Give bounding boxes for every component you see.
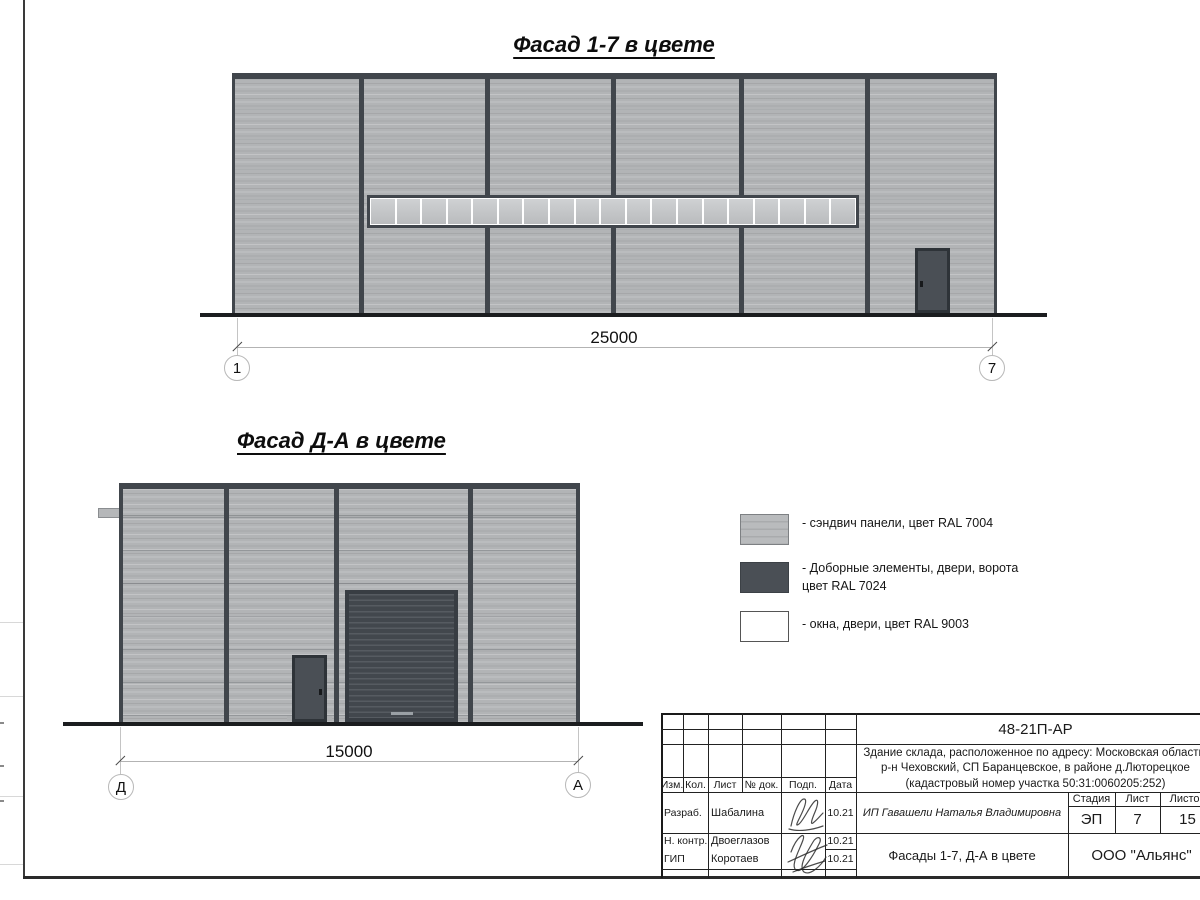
stage-value: ЭП <box>1068 806 1115 833</box>
signature-nkontr-gip <box>783 828 829 876</box>
window-pane <box>704 199 728 224</box>
document-code: 48-21П-АР <box>856 714 1200 744</box>
ground-line-facade-d-a <box>63 722 643 726</box>
dimension-value: 25000 <box>514 328 714 348</box>
roller-gate <box>345 590 458 722</box>
window-pane <box>729 199 753 224</box>
gate-handle <box>391 712 413 716</box>
margin-divider <box>0 622 23 623</box>
drawing-title: Фасады 1-7, Д-А в цвете <box>856 833 1068 878</box>
legend-swatch-ral7004 <box>740 514 789 545</box>
name-nkontr: Двоеглазов <box>708 833 781 849</box>
window-pane <box>422 199 446 224</box>
facade-column <box>865 79 870 313</box>
window-pane <box>371 199 395 224</box>
window-pane <box>397 199 421 224</box>
legend-label-ral9003: - окна, двери, цвет RAL 9003 <box>802 617 969 631</box>
door-handle <box>319 689 322 695</box>
facade-column <box>334 489 339 722</box>
window-pane <box>601 199 625 224</box>
extension-line <box>120 727 121 774</box>
window-pane <box>678 199 702 224</box>
margin-mark <box>0 765 4 767</box>
role-nkontr: Н. контр. <box>661 833 708 849</box>
window-pane <box>806 199 830 224</box>
window-pane <box>780 199 804 224</box>
name-gip: Коротаев <box>708 849 781 869</box>
legend-label-ral7024-line2: цвет RAL 7024 <box>802 579 887 593</box>
role-razrab: Разраб. <box>661 792 708 833</box>
entrance-door-facade-1-7 <box>915 248 950 313</box>
grid-axis-bubble-1: 1 <box>224 355 250 381</box>
margin-mark <box>0 800 4 802</box>
facade-column <box>224 489 229 722</box>
window-pane <box>627 199 651 224</box>
margin-mark <box>0 722 4 724</box>
dimension-value: 15000 <box>249 742 449 762</box>
drawing-sheet: { "colors":{ "panel":"#b2b4b6", "panel_j… <box>0 0 1200 900</box>
client-name: ИП Гавашели Наталья Владимировна <box>856 792 1068 833</box>
margin-divider <box>0 864 23 865</box>
legend-label-ral7024: - Доборные элементы, двери, ворота <box>802 561 1018 575</box>
facade-d-a-title: Фасад Д-А в цвете <box>237 428 446 454</box>
door-handle <box>920 281 923 287</box>
sheet-label: Лист <box>1115 792 1160 806</box>
address-line2: р-н Чеховский, СП Баранцевское, в районе… <box>856 761 1200 776</box>
window-pane <box>473 199 497 224</box>
sheets-total: 15 <box>1160 806 1200 833</box>
stage-label: Стадия <box>1068 792 1115 806</box>
name-razrab: Шабалина <box>708 792 781 833</box>
tb-line <box>781 713 782 878</box>
legend-swatch-ral9003 <box>740 611 789 642</box>
extension-line <box>992 318 993 357</box>
sheet-number: 7 <box>1115 806 1160 833</box>
col-header-podp: Подп. <box>781 777 825 792</box>
project-address: Здание склада, расположенное по адресу: … <box>856 746 1200 791</box>
entrance-door-facade-d-a <box>292 655 327 722</box>
address-line1: Здание склада, расположенное по адресу: … <box>856 746 1200 761</box>
extension-line <box>578 727 579 773</box>
window-pane <box>524 199 548 224</box>
facade-column <box>468 489 473 722</box>
margin-divider <box>0 796 23 797</box>
window-pane <box>448 199 472 224</box>
facade-column <box>359 79 364 313</box>
legend-swatch-ral7024 <box>740 562 789 593</box>
window-pane <box>831 199 855 224</box>
grid-axis-bubble-d: Д <box>108 774 134 800</box>
sheet-left-border <box>23 0 25 878</box>
window-pane <box>652 199 676 224</box>
col-header-izm: Изм. <box>661 777 683 792</box>
ground-line-facade-1-7 <box>200 313 1047 317</box>
address-line3: (кадастровый номер участка 50:31:0060205… <box>856 777 1200 792</box>
col-header-doc: № док. <box>742 777 781 792</box>
window-pane <box>755 199 779 224</box>
window-pane <box>499 199 523 224</box>
margin-divider <box>0 696 23 697</box>
window-pane <box>576 199 600 224</box>
tb-line <box>661 729 856 730</box>
col-header-data: Дата <box>825 777 856 792</box>
date-razrab: 10.21 <box>825 792 856 833</box>
grid-axis-bubble-a: А <box>565 772 591 798</box>
signature-razrab <box>785 794 825 832</box>
date-gip: 10.21 <box>825 849 856 869</box>
role-gip: ГИП <box>661 849 708 869</box>
legend-label-ral7004: - сэндвич панели, цвет RAL 7004 <box>802 516 993 530</box>
window-pane <box>550 199 574 224</box>
facade-d-a-elevation <box>119 483 580 722</box>
facade-1-7-title: Фасад 1-7 в цвете <box>413 32 815 58</box>
facade-1-7-elevation <box>232 73 997 313</box>
organization-name: ООО "Альянс" <box>1068 833 1200 878</box>
window-strip-panes <box>370 198 856 225</box>
gutter-outlet <box>98 508 121 518</box>
col-header-kol: Кол. <box>683 777 708 792</box>
col-header-list: Лист <box>708 777 742 792</box>
sheets-label: Листов <box>1160 792 1200 806</box>
date-nkontr: 10.21 <box>825 833 856 849</box>
grid-axis-bubble-7: 7 <box>979 355 1005 381</box>
extension-line <box>237 318 238 357</box>
ribbon-window <box>367 195 859 228</box>
